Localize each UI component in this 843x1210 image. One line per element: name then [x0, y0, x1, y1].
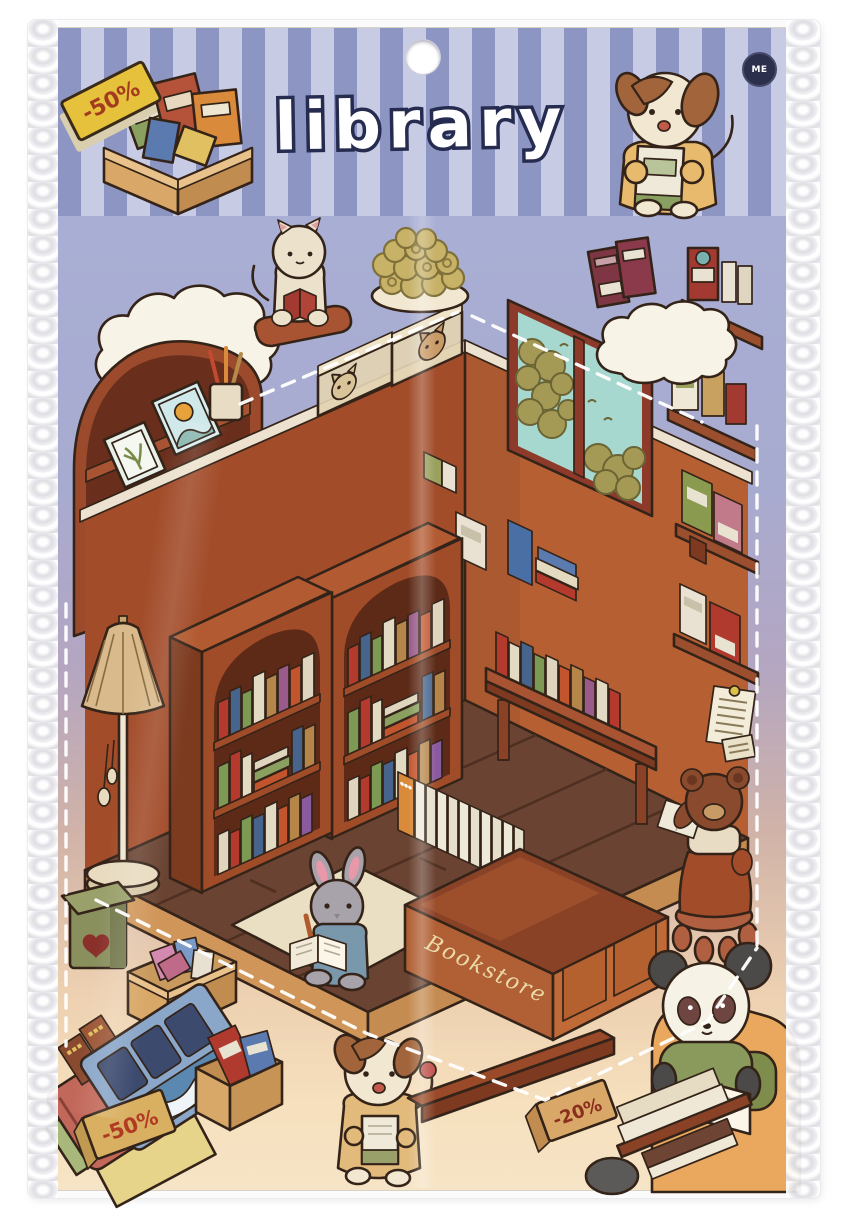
package-crimp-right: [786, 20, 820, 1198]
hang-hole: [406, 40, 440, 74]
brand-logo-text: ME: [751, 65, 767, 75]
package-crimp-left: [28, 20, 58, 1198]
product-photo: Bookstore: [0, 0, 843, 1210]
product-title: library: [0, 79, 843, 171]
brand-logo: ME: [742, 52, 777, 87]
plastic-sheen: [408, 216, 436, 1188]
